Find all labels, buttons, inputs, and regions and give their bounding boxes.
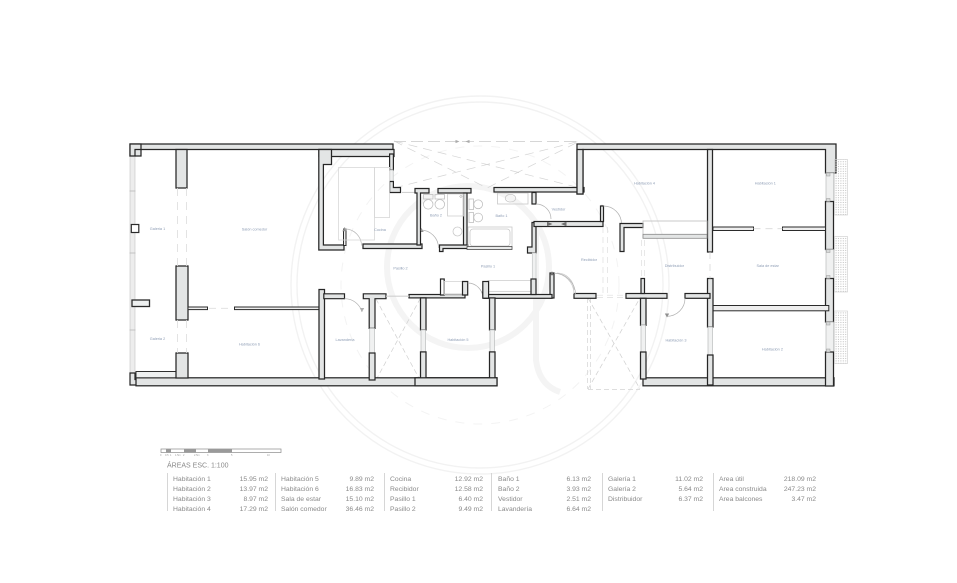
svg-text:12.58 m2: 12.58 m2 (455, 486, 484, 493)
svg-text:Habitación 6: Habitación 6 (239, 343, 260, 347)
svg-text:Pasillo 2: Pasillo 2 (393, 266, 407, 270)
svg-text:13.97 m2: 13.97 m2 (240, 486, 269, 493)
svg-text:Habitación 3: Habitación 3 (665, 339, 686, 343)
svg-text:Habitación 5: Habitación 5 (281, 476, 319, 483)
svg-text:Distribuidor: Distribuidor (608, 496, 643, 503)
svg-text:6.37 m2: 6.37 m2 (678, 496, 703, 503)
svg-text:Habitación 1: Habitación 1 (755, 182, 776, 186)
svg-text:0.5: 0.5 (165, 454, 169, 457)
svg-text:6.13 m2: 6.13 m2 (566, 476, 591, 483)
svg-text:Vestidor: Vestidor (552, 208, 566, 212)
svg-text:Habitación 3: Habitación 3 (173, 496, 211, 503)
svg-text:36.46 m2: 36.46 m2 (346, 506, 375, 513)
svg-text:Sala de estar: Sala de estar (757, 264, 780, 268)
svg-text:15.95 m2: 15.95 m2 (240, 476, 269, 483)
svg-text:Habitación 6: Habitación 6 (281, 486, 319, 493)
svg-text:Vestidor: Vestidor (498, 496, 523, 503)
svg-text:6.64 m2: 6.64 m2 (566, 506, 591, 513)
svg-text:Galeria 1: Galeria 1 (150, 227, 165, 231)
svg-text:247.23 m2: 247.23 m2 (784, 486, 816, 493)
svg-text:Habitación 1: Habitación 1 (173, 476, 211, 483)
svg-text:Pasillo 1: Pasillo 1 (481, 265, 495, 269)
svg-text:3.93 m2: 3.93 m2 (566, 486, 591, 493)
svg-text:Area construida: Area construida (719, 486, 767, 493)
svg-text:15.10 m2: 15.10 m2 (346, 496, 375, 503)
svg-text:ÁREAS ESC. 1:100: ÁREAS ESC. 1:100 (167, 461, 229, 470)
svg-text:Distribuidor: Distribuidor (665, 264, 685, 268)
svg-text:1.5m: 1.5m (175, 454, 181, 457)
svg-text:16.83 m2: 16.83 m2 (346, 486, 375, 493)
svg-text:Recibidor: Recibidor (390, 486, 419, 493)
svg-text:Galería 1: Galería 1 (608, 476, 636, 483)
svg-text:Baño 1: Baño 1 (495, 214, 507, 218)
svg-text:12.92 m2: 12.92 m2 (455, 476, 484, 483)
svg-text:Lavandería: Lavandería (336, 338, 356, 342)
svg-text:Habitación 5: Habitación 5 (447, 338, 468, 342)
svg-text:Pasillo 1: Pasillo 1 (390, 496, 416, 503)
svg-text:6.40 m2: 6.40 m2 (458, 496, 483, 503)
svg-text:Area balcones: Area balcones (719, 496, 763, 503)
svg-text:Salón comedor: Salón comedor (242, 228, 268, 232)
svg-text:Lavandería: Lavandería (498, 506, 532, 513)
svg-text:Sala de estar: Sala de estar (281, 496, 322, 503)
svg-text:Galería 2: Galería 2 (608, 486, 636, 493)
svg-text:2.5m: 2.5m (194, 454, 200, 457)
svg-text:Cocina: Cocina (390, 476, 411, 483)
svg-text:5.64 m2: 5.64 m2 (678, 486, 703, 493)
svg-text:Baño 2: Baño 2 (430, 214, 442, 218)
svg-text:Habitación 2: Habitación 2 (762, 347, 783, 351)
svg-text:8.97 m2: 8.97 m2 (243, 496, 268, 503)
svg-text:Habitación 4: Habitación 4 (634, 182, 655, 186)
svg-text:11.02 m2: 11.02 m2 (675, 476, 703, 483)
svg-text:2.51 m2: 2.51 m2 (566, 496, 591, 503)
svg-text:Galeria 2: Galeria 2 (150, 337, 165, 341)
svg-text:Habitación 4: Habitación 4 (173, 506, 211, 513)
svg-text:Area útil: Area útil (719, 476, 744, 483)
svg-text:Salón comedor: Salón comedor (281, 506, 327, 513)
svg-text:Habitación 2: Habitación 2 (173, 486, 211, 493)
svg-text:Pasillo 2: Pasillo 2 (390, 506, 416, 513)
svg-text:Baño 2: Baño 2 (498, 486, 520, 493)
svg-text:17.29 m2: 17.29 m2 (240, 506, 269, 513)
svg-text:Recibidor: Recibidor (581, 258, 598, 262)
svg-text:218.09 m2: 218.09 m2 (784, 476, 816, 483)
svg-text:Cocina: Cocina (374, 228, 387, 232)
svg-text:3.47 m2: 3.47 m2 (791, 496, 816, 503)
svg-text:Baño 1: Baño 1 (498, 476, 520, 483)
svg-text:9.89 m2: 9.89 m2 (349, 476, 374, 483)
svg-text:9.49 m2: 9.49 m2 (458, 506, 483, 513)
